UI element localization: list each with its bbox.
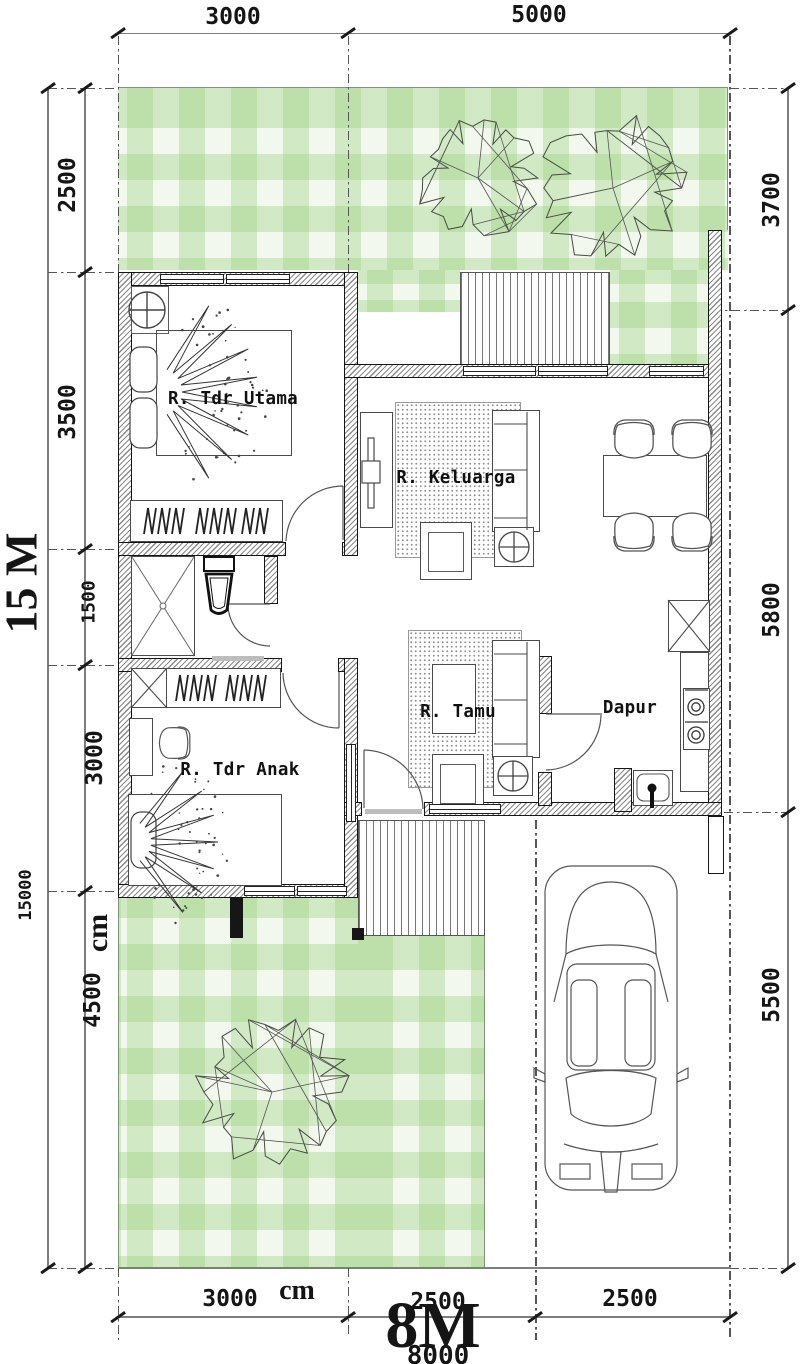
window-kids-side bbox=[346, 744, 356, 822]
lawn-left-of-terrace bbox=[358, 270, 460, 312]
living-armchair-seat bbox=[440, 764, 476, 804]
wall-bath-right bbox=[264, 556, 278, 604]
overall-height-label: 15 M bbox=[0, 533, 48, 634]
cabinet-xbox-dining bbox=[668, 600, 710, 652]
sill-bath-door bbox=[212, 656, 264, 661]
toilet bbox=[204, 557, 234, 614]
coffee-table bbox=[432, 664, 476, 734]
dim-line-top bbox=[118, 33, 730, 35]
ext-bottom-mid bbox=[348, 1268, 350, 1334]
unit-label-bottom: cm bbox=[279, 1275, 315, 1307]
window-dining bbox=[649, 366, 704, 376]
column-front-left bbox=[230, 898, 243, 938]
ext-right-4 bbox=[730, 1268, 788, 1270]
tv-cabinet bbox=[360, 412, 393, 528]
front-porch-deck bbox=[358, 820, 485, 936]
stove bbox=[683, 688, 710, 750]
unit-label-left: cm bbox=[81, 914, 115, 952]
kitchen-sink bbox=[633, 770, 673, 806]
shower-tray bbox=[131, 556, 195, 656]
room-label-family: R. Keluarga bbox=[396, 468, 515, 488]
kids-bed bbox=[128, 794, 282, 886]
family-side-table bbox=[494, 527, 534, 567]
room-label-living: R. Tamu bbox=[420, 702, 496, 722]
site-edge-top bbox=[118, 87, 728, 88]
lawn-right-of-terrace bbox=[610, 270, 708, 366]
floor-plan: R. Tdr Utama R. Keluarga R. Tamu R. Tdr … bbox=[0, 0, 800, 1364]
window-kids-1 bbox=[244, 886, 295, 896]
wall-sink-stub bbox=[614, 768, 632, 812]
ext-top-mid bbox=[348, 36, 350, 272]
dim-line-left-outer bbox=[47, 88, 49, 1268]
dim-line-left-inner bbox=[84, 88, 86, 1268]
dim-right-3: 5500 bbox=[759, 967, 785, 1022]
pillar-carport bbox=[708, 816, 724, 874]
lawn-driveway-edge bbox=[484, 936, 485, 1268]
ext-right-1 bbox=[730, 88, 788, 90]
carport-boundary bbox=[535, 820, 537, 1340]
window-family-2 bbox=[538, 366, 608, 376]
dim-right-2: 5800 bbox=[759, 582, 785, 637]
car-icon bbox=[534, 866, 688, 1192]
wall-tamu-kitchen-a bbox=[538, 656, 552, 714]
wall-tamu-kitchen-b bbox=[538, 772, 552, 806]
window-tamu bbox=[429, 804, 501, 814]
back-terrace-deck bbox=[460, 272, 610, 366]
ext-right-boundary bbox=[729, 36, 731, 1340]
door-kitchen bbox=[546, 714, 602, 770]
door-bath bbox=[228, 604, 270, 646]
dim-bottom-3: 2500 bbox=[602, 1286, 657, 1312]
living-side-table bbox=[493, 756, 533, 796]
window-master-top-1 bbox=[160, 274, 224, 284]
dim-bottom-1: 3000 bbox=[202, 1286, 257, 1312]
kids-wardrobe-xbox bbox=[131, 668, 167, 708]
family-armchair-seat bbox=[428, 532, 464, 572]
ext-right-3 bbox=[724, 812, 788, 814]
window-kids-2 bbox=[297, 886, 347, 896]
nightstand bbox=[131, 286, 169, 334]
dim-left-1: 2500 bbox=[55, 157, 81, 212]
dim-line-right bbox=[787, 88, 789, 1268]
window-master-top-2 bbox=[226, 274, 290, 284]
kids-desk bbox=[129, 718, 153, 776]
dim-top-1: 3000 bbox=[205, 4, 260, 30]
front-lawn-left bbox=[118, 898, 358, 1268]
wall-master-bath-a bbox=[118, 542, 286, 556]
dim-top-2: 5000 bbox=[511, 2, 566, 28]
dim-left-4: 3000 bbox=[82, 730, 108, 785]
wall-right bbox=[708, 230, 722, 816]
dim-left-total: 15000 bbox=[16, 869, 36, 920]
room-label-master: R. Tdr Utama bbox=[168, 389, 298, 409]
ext-right-2 bbox=[712, 310, 788, 312]
site-edge-bottom bbox=[118, 1267, 730, 1269]
master-wardrobe bbox=[130, 500, 283, 542]
dim-bottom-total: 8000 bbox=[407, 1341, 470, 1364]
column-porch bbox=[352, 928, 364, 940]
wall-master-right bbox=[344, 272, 358, 556]
window-family-1 bbox=[463, 366, 536, 376]
dining-table bbox=[603, 455, 707, 517]
dim-left-3: 1500 bbox=[79, 580, 100, 623]
desk-chair bbox=[159, 727, 189, 759]
front-lawn-center bbox=[358, 936, 485, 1268]
sill-front-door bbox=[365, 809, 422, 814]
room-label-kids: R. Tdr Anak bbox=[180, 760, 299, 780]
door-master bbox=[286, 486, 343, 541]
room-label-kitchen: Dapur bbox=[603, 698, 657, 718]
back-lawn bbox=[118, 88, 728, 270]
dim-left-5: 4500 bbox=[80, 972, 106, 1027]
dim-left-2: 3500 bbox=[55, 384, 81, 439]
living-sofa bbox=[492, 640, 540, 758]
ext-bottom-left bbox=[118, 1268, 120, 1340]
dim-right-1: 3700 bbox=[759, 172, 785, 227]
site-edge-left-front bbox=[118, 898, 119, 1268]
ext-top-left bbox=[118, 36, 120, 272]
door-kids bbox=[283, 672, 339, 728]
